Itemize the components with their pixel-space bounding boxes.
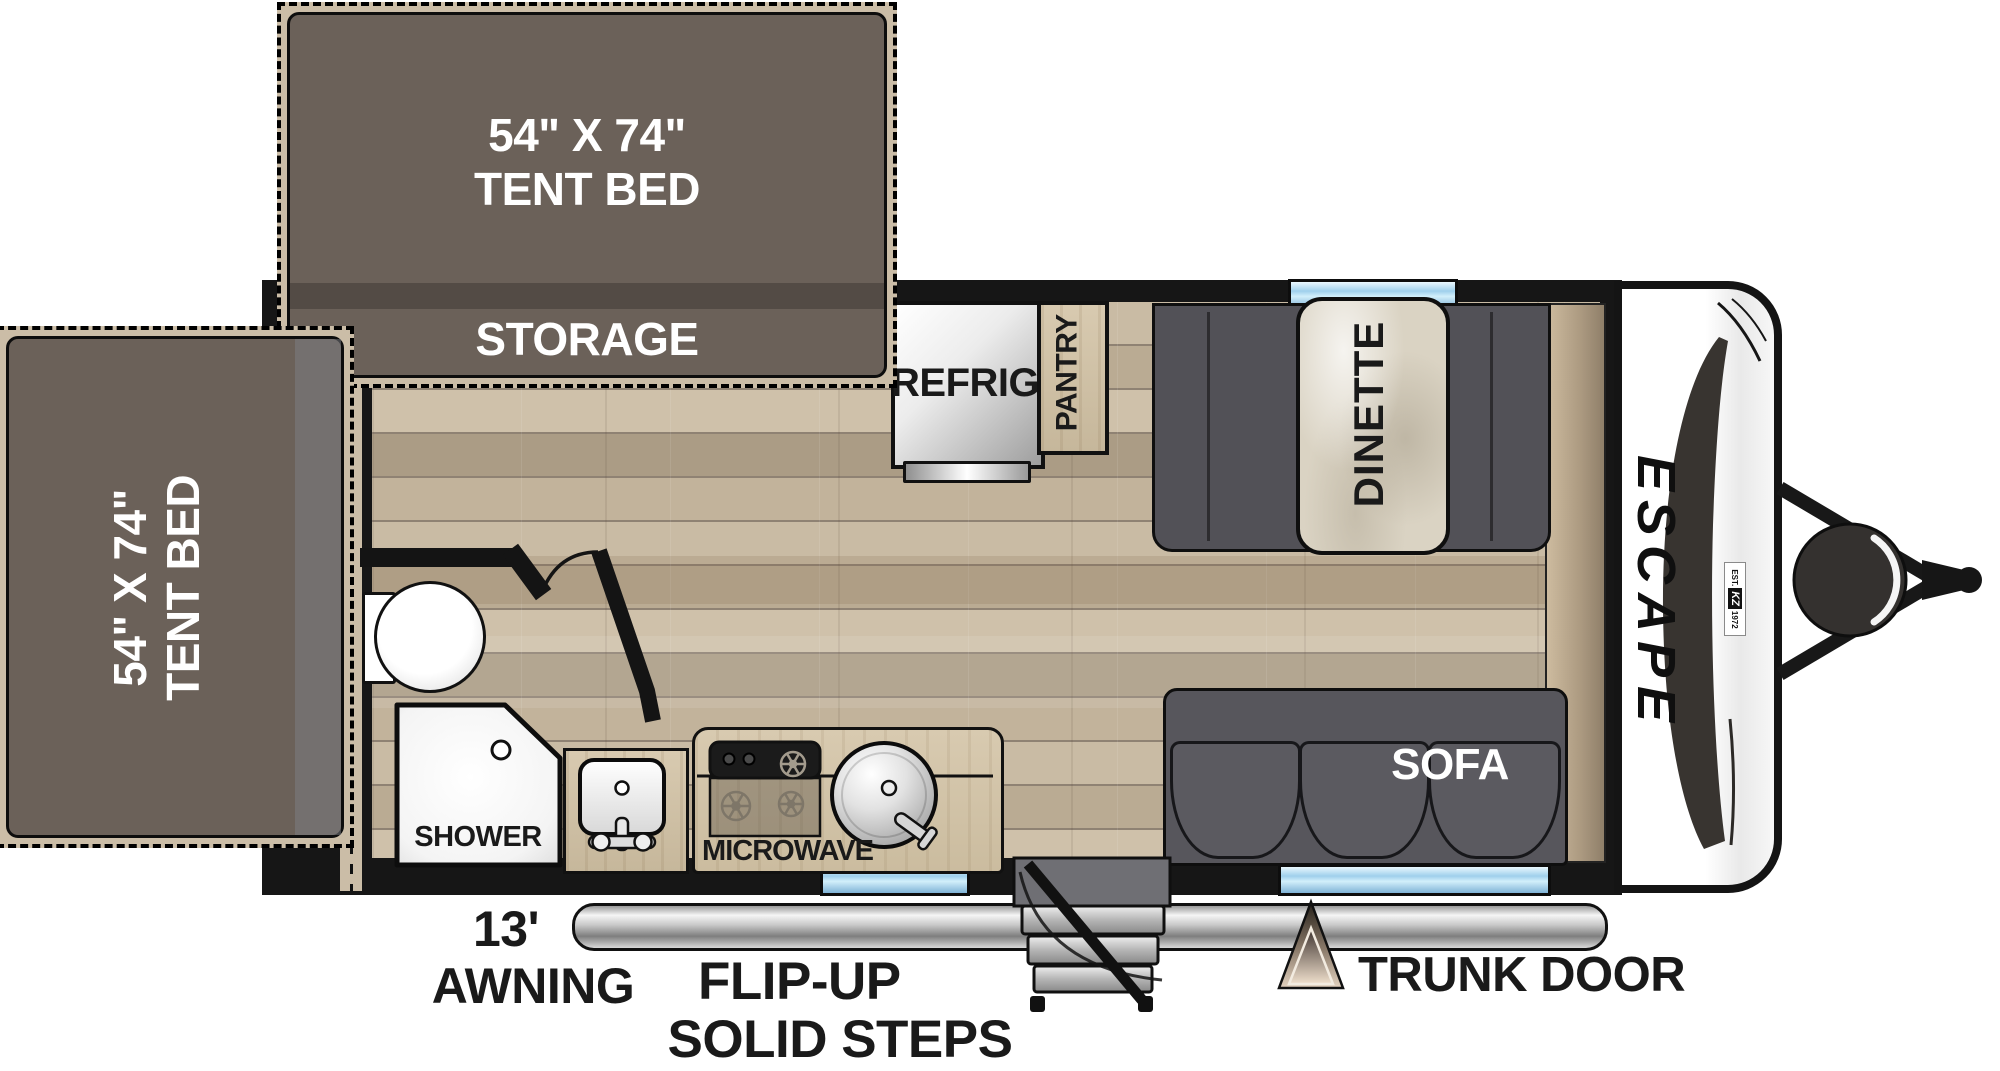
rear-bed-size: 54" X 74" [104, 378, 157, 798]
awning-label: AWNING [412, 960, 654, 1013]
entry-steps [1002, 848, 1192, 1018]
rear-tent-bed-mattress: 54" X 74" TENT BED [6, 336, 344, 838]
trunk-door-label: TRUNK DOOR [1358, 950, 1778, 1001]
trunk-door-arrow [1275, 898, 1347, 996]
sofa-window [1278, 864, 1551, 896]
front-bed-size: 54" X 74" [290, 111, 884, 159]
brand-name: ESCAPE [1624, 313, 1684, 873]
refrig-label: REFRIG [891, 362, 1037, 404]
sofa-label: SOFA [1330, 742, 1570, 788]
bench-seam [1490, 312, 1493, 541]
front-tent-bed-mattress: 54" X 74" TENT BED STORAGE [287, 12, 887, 378]
microwave-label: MICROWAVE [690, 836, 885, 866]
badge-est: EST. [1731, 569, 1740, 586]
bath-sink [563, 748, 683, 868]
rear-bed-type: TENT BED [157, 378, 210, 798]
wall-shadow [290, 283, 884, 309]
front-cap: ESCAPE EST. KZ 1972 [1614, 281, 1782, 893]
pantry-label: PANTRY [1051, 298, 1083, 448]
awning-length-label: 13' [446, 903, 566, 956]
sofa-cushion [1170, 741, 1301, 859]
floorplan-canvas: REFRIG PANTRY DINETTE SOFA [0, 0, 2000, 1071]
steps-label-line1: FLIP-UP [698, 954, 898, 1010]
kz-badge: EST. KZ 1972 [1724, 562, 1746, 636]
steps-label-line2: SOLID STEPS [640, 1012, 1040, 1068]
storage-label: STORAGE [290, 315, 884, 363]
wall-shadow [295, 339, 341, 835]
front-bed-type: TENT BED [290, 165, 884, 213]
badge-year: 1972 [1731, 611, 1740, 629]
bench-seam [1207, 312, 1210, 541]
shower-label: SHOWER [398, 822, 558, 852]
refrigerator-door [903, 461, 1031, 483]
bathroom-walls [350, 540, 710, 740]
rear-bed-label: 54" X 74" TENT BED [104, 378, 210, 798]
dinette-label: DINETTE [1347, 289, 1391, 539]
front-tent-bed: 54" X 74" TENT BED STORAGE [277, 2, 897, 388]
rear-tent-bed: 54" X 74" TENT BED [0, 326, 354, 848]
hitch-assembly [1772, 438, 1984, 728]
kz-logo: KZ [1728, 588, 1742, 609]
